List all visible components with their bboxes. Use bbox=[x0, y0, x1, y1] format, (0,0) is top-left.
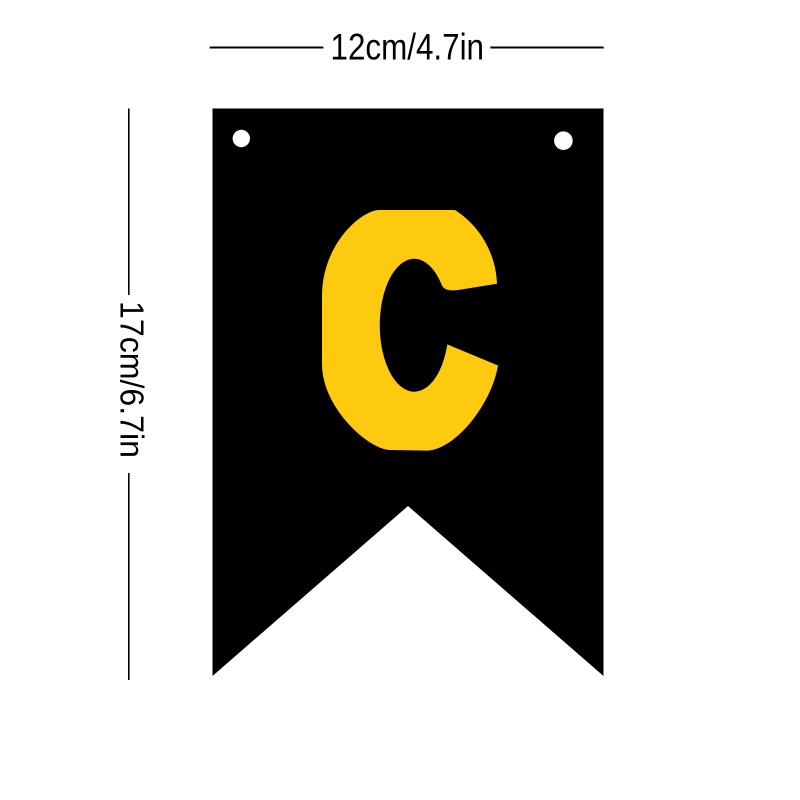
svg-text:12cm/4.7in: 12cm/4.7in bbox=[331, 27, 485, 68]
svg-text:17cm/6.7in: 17cm/6.7in bbox=[113, 301, 150, 458]
